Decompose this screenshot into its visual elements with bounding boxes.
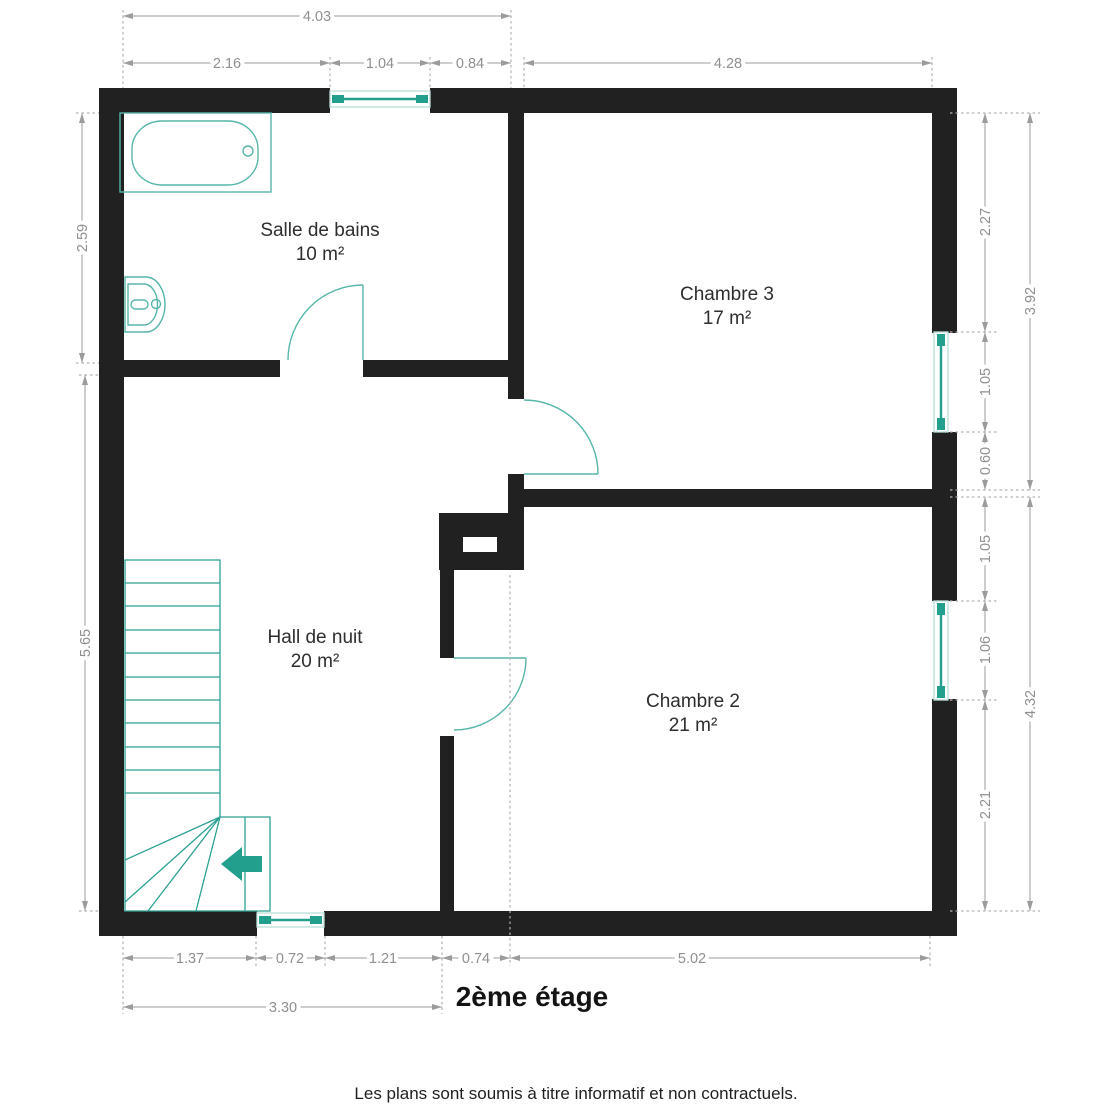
dim-label: 1.06 (978, 636, 994, 664)
dim-label: 5.02 (678, 951, 706, 967)
dim-label: 2.21 (978, 791, 994, 819)
windows (257, 91, 948, 927)
extension-lines (76, 10, 1040, 1014)
bathtub (120, 113, 271, 192)
room-area-salle-de-bains: 10 m² (296, 244, 345, 265)
window-right-lower (934, 601, 948, 700)
wall-segment (932, 699, 957, 936)
dim-label: 3.92 (1023, 287, 1039, 315)
dim-label: 1.05 (978, 368, 994, 396)
window-right-upper (934, 332, 948, 432)
wall-segment (99, 911, 257, 936)
dim-label: 3.30 (269, 1000, 297, 1016)
walls (99, 88, 957, 936)
wall-segment (440, 736, 454, 936)
wall-segment (99, 88, 124, 936)
dim-label: 1.05 (978, 535, 994, 563)
room-area-chambre-2: 21 m² (669, 715, 718, 736)
wall-segment (324, 911, 955, 936)
dim-label: 4.28 (714, 56, 742, 72)
fixtures (120, 113, 271, 911)
sink (125, 277, 165, 332)
dim-label: 2.59 (75, 224, 91, 252)
dim-label: 0.74 (462, 951, 490, 967)
dimension-lines: 4.03 2.16 1.04 0.84 4.28 2.59 5.65 2.27 … (75, 9, 1039, 1016)
dim-label: 5.65 (78, 629, 94, 657)
wall-segment (932, 432, 957, 601)
stairs-direction-arrow-icon (221, 847, 262, 881)
dim-label: 0.72 (276, 951, 304, 967)
staircase (125, 560, 270, 911)
dim-label: 1.21 (369, 951, 397, 967)
dim-label: 2.16 (213, 56, 241, 72)
window-bottom (257, 913, 324, 927)
floor-title: 2ème étage (456, 981, 609, 1012)
room-label-chambre-2: Chambre 2 (646, 691, 740, 712)
disclaimer-text: Les plans sont soumis à titre informatif… (354, 1084, 797, 1103)
room-label-salle-de-bains: Salle de bains (260, 220, 379, 241)
wall-segment (99, 360, 280, 377)
room-area-chambre-3: 17 m² (703, 308, 752, 329)
floor-plan-svg: 4.03 2.16 1.04 0.84 4.28 2.59 5.65 2.27 … (0, 0, 1104, 1104)
door-bathroom (288, 285, 363, 360)
wall-segment (508, 489, 932, 507)
wall-segment (932, 88, 957, 333)
chimney-flue-opening (463, 537, 497, 552)
dim-label: 0.60 (978, 447, 994, 475)
wall-segment (508, 113, 524, 399)
wall-segment (430, 88, 955, 113)
dim-label: 1.04 (366, 56, 394, 72)
wall-segment (440, 570, 454, 658)
window-top (330, 91, 430, 107)
floor-plan-page: { "title": "2ème étage", "disclaimer": "… (0, 0, 1104, 1104)
wall-segment (99, 88, 330, 113)
room-label-hall-de-nuit: Hall de nuit (267, 627, 363, 648)
room-label-chambre-3: Chambre 3 (680, 284, 774, 305)
door-chambre-2 (454, 658, 526, 730)
door-chambre-3 (524, 400, 598, 474)
room-area-hall-de-nuit: 20 m² (291, 651, 340, 672)
dim-label: 4.32 (1023, 690, 1039, 718)
dim-label: 1.37 (176, 951, 204, 967)
dim-label: 4.03 (303, 9, 331, 25)
dim-label: 0.84 (456, 56, 484, 72)
dim-label: 2.27 (978, 208, 994, 236)
wall-segment (363, 360, 524, 377)
